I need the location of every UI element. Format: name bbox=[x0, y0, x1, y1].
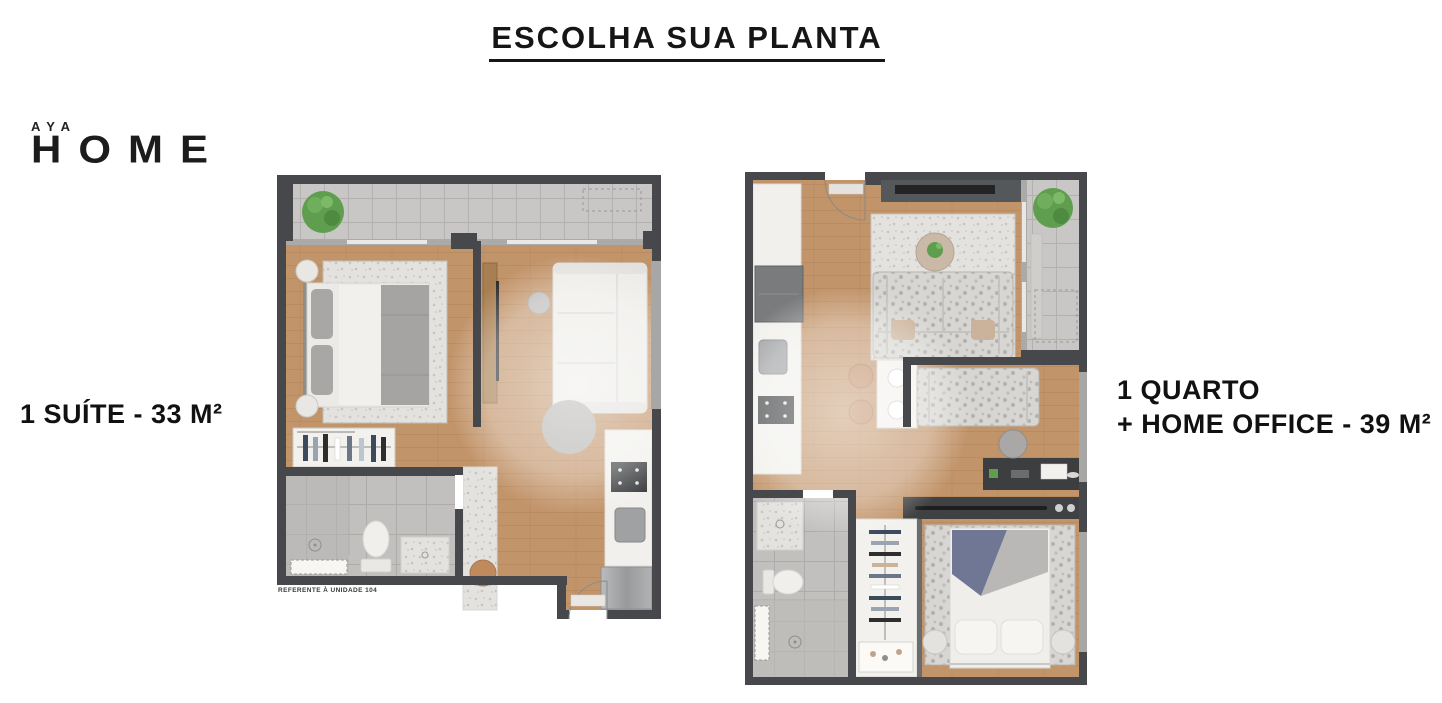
desk-plant-icon bbox=[989, 469, 998, 478]
balcony-plant-icon bbox=[1033, 188, 1073, 228]
bath-mat bbox=[291, 560, 347, 574]
toilet-icon bbox=[763, 570, 803, 594]
nightstand bbox=[296, 260, 318, 282]
balcony-plant-icon bbox=[302, 191, 344, 233]
fridge-icon bbox=[601, 567, 652, 609]
page: ESCOLHA SUA PLANTA AYA HOME 1 SUÍTE - 33… bbox=[0, 0, 1442, 703]
plan-label-line2: + HOME OFFICE - 39 M² bbox=[1117, 407, 1431, 441]
sink-icon bbox=[615, 508, 645, 542]
closet bbox=[855, 519, 917, 677]
bed bbox=[950, 528, 1050, 668]
bath-mat bbox=[755, 606, 769, 660]
closet bbox=[293, 428, 395, 467]
vanity bbox=[401, 537, 449, 573]
plan-label-1-suite: 1 SUÍTE - 33 M² bbox=[20, 399, 223, 430]
balcony-glass-wall bbox=[1021, 180, 1027, 350]
plan-caption: REFERENTE À UNIDADE 104 bbox=[278, 587, 377, 594]
coffee-table bbox=[916, 233, 954, 271]
floorplan-1-suite-drawing bbox=[277, 175, 661, 619]
floorplan-1-quarto-home-office-drawing bbox=[745, 172, 1087, 685]
toilet-icon bbox=[361, 521, 391, 572]
nightstand bbox=[296, 395, 318, 417]
kitchen-island bbox=[463, 467, 497, 610]
bathroom bbox=[286, 475, 455, 576]
page-title: ESCOLHA SUA PLANTA bbox=[486, 20, 888, 62]
office-chair bbox=[999, 430, 1027, 458]
tv-icon bbox=[895, 185, 995, 194]
plan-label-1-quarto-home-office: 1 QUARTO + HOME OFFICE - 39 M² bbox=[1117, 373, 1431, 441]
nightstand bbox=[1051, 630, 1075, 654]
bed bbox=[303, 283, 429, 407]
brand-logo-main: HOME bbox=[31, 131, 225, 168]
nightstand bbox=[923, 630, 947, 654]
floorplan-1-suite[interactable]: REFERENTE À UNIDADE 104 bbox=[277, 175, 661, 619]
plan-label-line1: 1 QUARTO bbox=[1117, 373, 1431, 407]
floorplan-1-quarto-home-office[interactable] bbox=[745, 172, 1087, 685]
page-title-text: ESCOLHA SUA PLANTA bbox=[489, 20, 884, 62]
brand-logo: AYA HOME bbox=[31, 119, 225, 171]
